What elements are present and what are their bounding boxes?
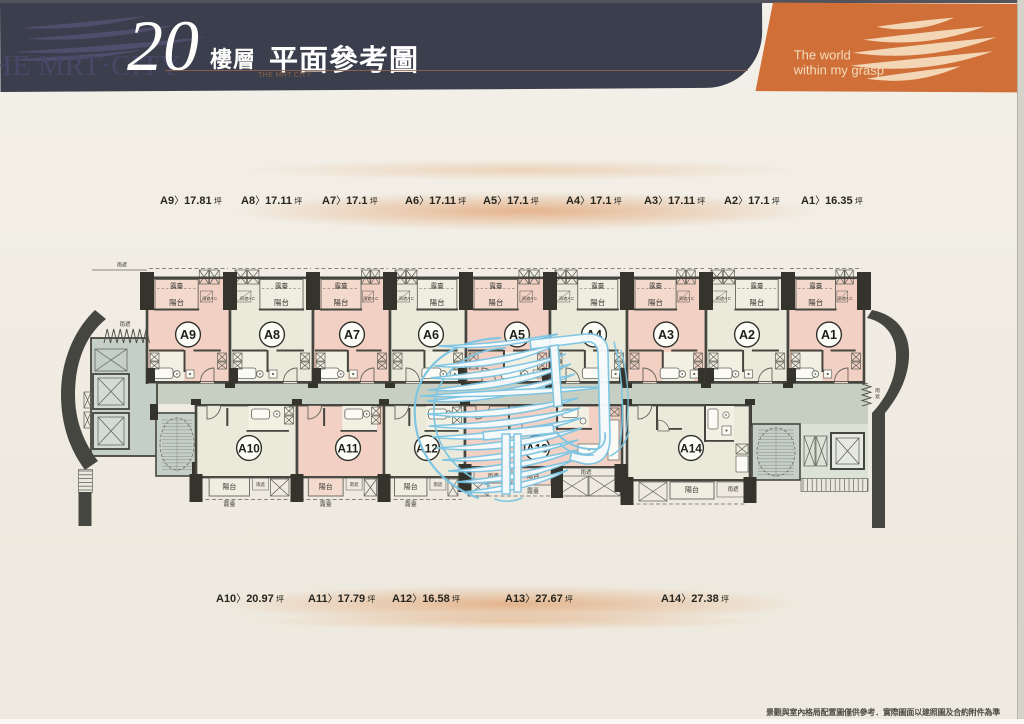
svg-text:露臺: 露臺 [431,281,445,290]
svg-text:露臺: 露臺 [809,281,823,290]
svg-text:雨遮: 雨遮 [434,481,443,488]
svg-text:雨遮: 雨遮 [580,468,592,476]
svg-text:陽台: 陽台 [808,297,823,307]
svg-text:陽台: 陽台 [648,297,663,307]
svg-text:露臺: 露臺 [170,281,184,290]
svg-text:陽台: 陽台 [334,297,349,307]
svg-text:雨遮: 雨遮 [350,481,359,488]
svg-text:雨遮: 雨遮 [119,320,131,328]
svg-text:A11: A11 [338,442,359,456]
svg-text:陽台: 陽台 [319,482,333,491]
svg-text:陽台: 陽台 [222,482,236,491]
svg-text:A7: A7 [344,328,360,342]
svg-text:露臺: 露臺 [223,500,235,508]
svg-text:雨: 雨 [875,388,880,394]
svg-text:雨遮: 雨遮 [117,262,127,269]
svg-text:A9: A9 [180,328,196,342]
svg-text:陽台: 陽台 [749,297,764,307]
svg-text:陽台: 陽台 [169,297,184,307]
svg-text:遮: 遮 [875,393,880,400]
svg-text:露臺: 露臺 [750,281,764,290]
svg-text:陽台: 陽台 [488,297,503,307]
svg-text:陽台: 陽台 [404,482,418,491]
svg-text:雨遮A C: 雨遮A C [399,295,414,302]
svg-text:露臺: 露臺 [335,281,349,290]
svg-text:露臺: 露臺 [275,281,289,290]
svg-text:露臺: 露臺 [649,281,663,290]
svg-text:A10: A10 [238,442,260,456]
svg-text:A8: A8 [264,328,280,342]
svg-text:雨遮: 雨遮 [256,481,265,488]
svg-text:雨遮A C: 雨遮A C [559,295,574,302]
svg-text:陽台: 陽台 [590,297,605,307]
svg-text:陽台: 陽台 [430,297,445,307]
svg-text:雨遮A C: 雨遮A C [716,295,731,302]
svg-text:雨遮A C: 雨遮A C [837,295,852,302]
svg-text:雨遮A C: 雨遮A C [202,295,217,302]
svg-text:雨遮A C: 雨遮A C [363,295,378,302]
svg-text:露臺: 露臺 [320,500,332,508]
svg-text:露臺: 露臺 [591,281,605,290]
svg-text:A1: A1 [821,328,837,342]
svg-text:露臺: 露臺 [489,281,503,290]
svg-text:A14: A14 [680,442,702,456]
svg-text:A6: A6 [423,328,439,342]
svg-text:雨遮A C: 雨遮A C [240,295,255,302]
svg-text:A2: A2 [739,328,755,342]
svg-text:露臺: 露臺 [405,500,417,508]
svg-text:雨遮: 雨遮 [727,485,739,493]
svg-text:陽台: 陽台 [274,297,289,307]
svg-text:雨遮A C: 雨遮A C [522,295,537,302]
svg-text:A3: A3 [658,328,674,342]
svg-text:露臺: 露臺 [527,487,539,495]
svg-text:陽台: 陽台 [685,485,699,494]
svg-text:雨遮A C: 雨遮A C [679,295,694,302]
